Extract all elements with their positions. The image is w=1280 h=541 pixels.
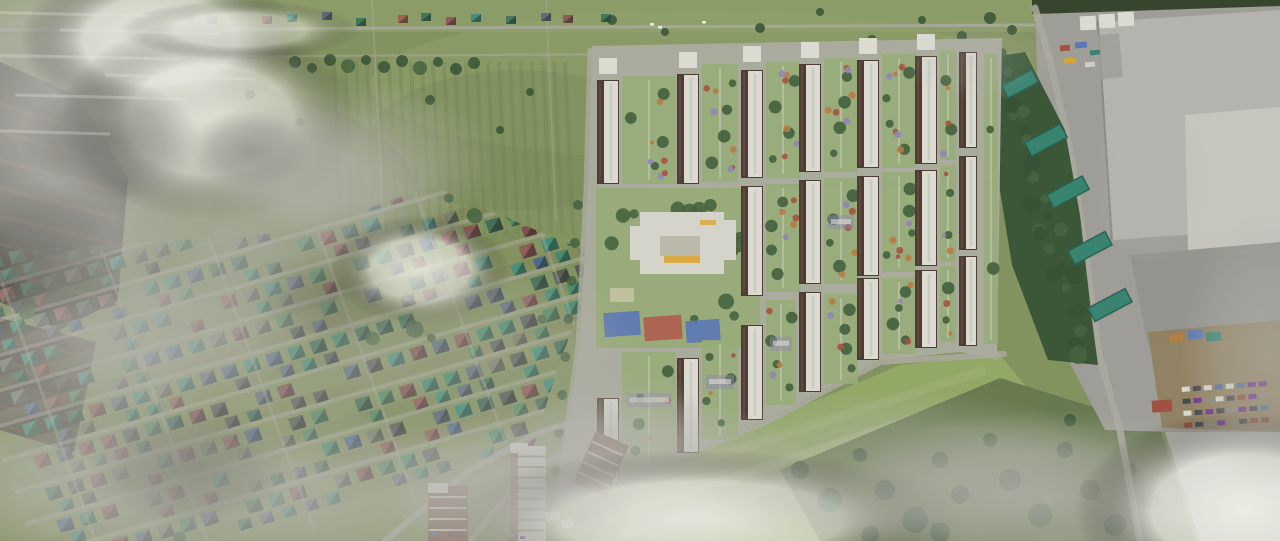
aerial-render-canvas	[0, 0, 1280, 541]
layer-clouds	[0, 0, 1280, 541]
aerial-masterplan-render	[0, 0, 1280, 541]
haze-overlay	[0, 0, 1280, 541]
